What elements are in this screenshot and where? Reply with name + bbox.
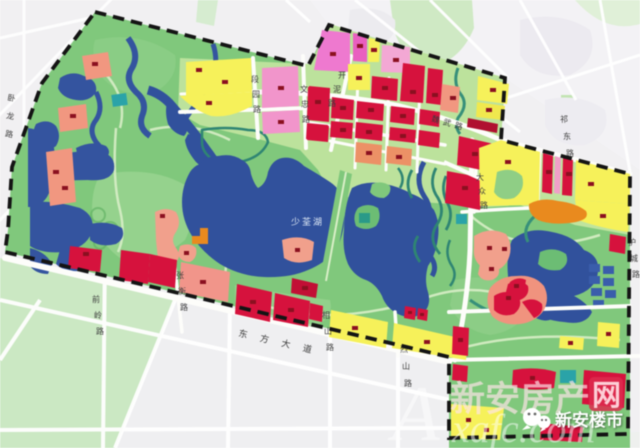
- svg-text:A: A: [387, 370, 440, 448]
- svg-text:新安楼市: 新安楼市: [555, 406, 623, 431]
- svg-text:少荃湖: 少荃湖: [291, 215, 324, 228]
